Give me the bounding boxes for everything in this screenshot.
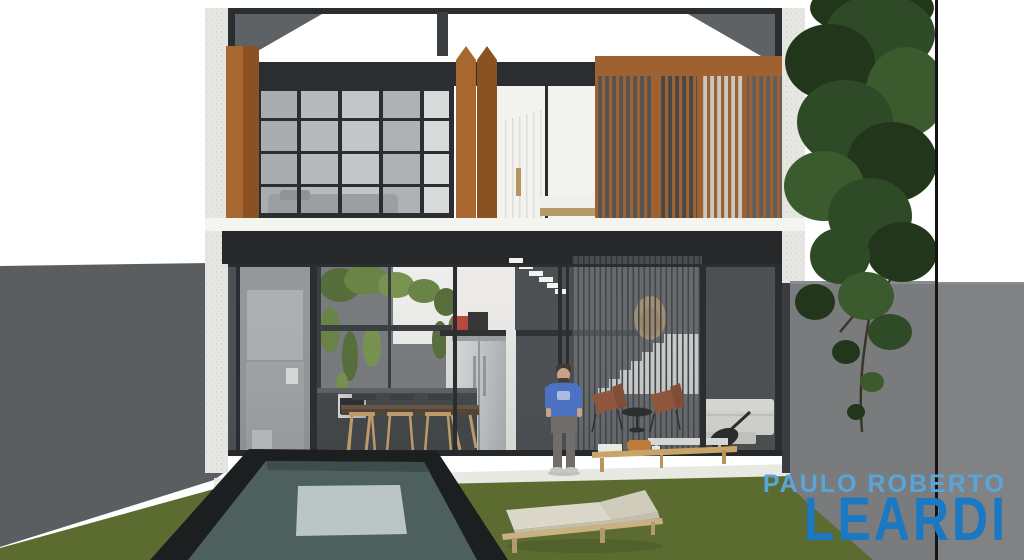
upper-lintel bbox=[228, 62, 608, 86]
house-facade bbox=[205, 8, 805, 473]
upper-white-wall bbox=[497, 86, 598, 218]
person-shoe bbox=[550, 467, 564, 473]
wardrobe-handle bbox=[516, 168, 521, 196]
table-books bbox=[598, 444, 622, 452]
roof-beam-end bbox=[775, 14, 782, 60]
upper-floor bbox=[226, 46, 782, 219]
floor-slab bbox=[205, 218, 805, 231]
watermark: PAULO ROBERTO LEARDI bbox=[763, 472, 1008, 550]
person-shoe bbox=[564, 467, 578, 473]
pool-reflection bbox=[296, 485, 407, 536]
roof-beam bbox=[228, 8, 782, 14]
wood-shutter-left bbox=[226, 46, 259, 219]
wood-slat-screen bbox=[595, 56, 782, 218]
tshirt-graphic bbox=[557, 391, 570, 400]
table-items bbox=[627, 440, 651, 451]
house-right-shadow bbox=[782, 283, 790, 473]
person-beard bbox=[558, 378, 569, 383]
rendering-canvas: PAULO ROBERTO LEARDI bbox=[0, 0, 1024, 560]
watermark-brand: LEARDI bbox=[763, 489, 1008, 550]
ground-floor bbox=[222, 231, 782, 456]
upper-window-left bbox=[256, 86, 454, 218]
roof-flue bbox=[437, 12, 448, 56]
sky-right bbox=[938, 0, 1024, 282]
